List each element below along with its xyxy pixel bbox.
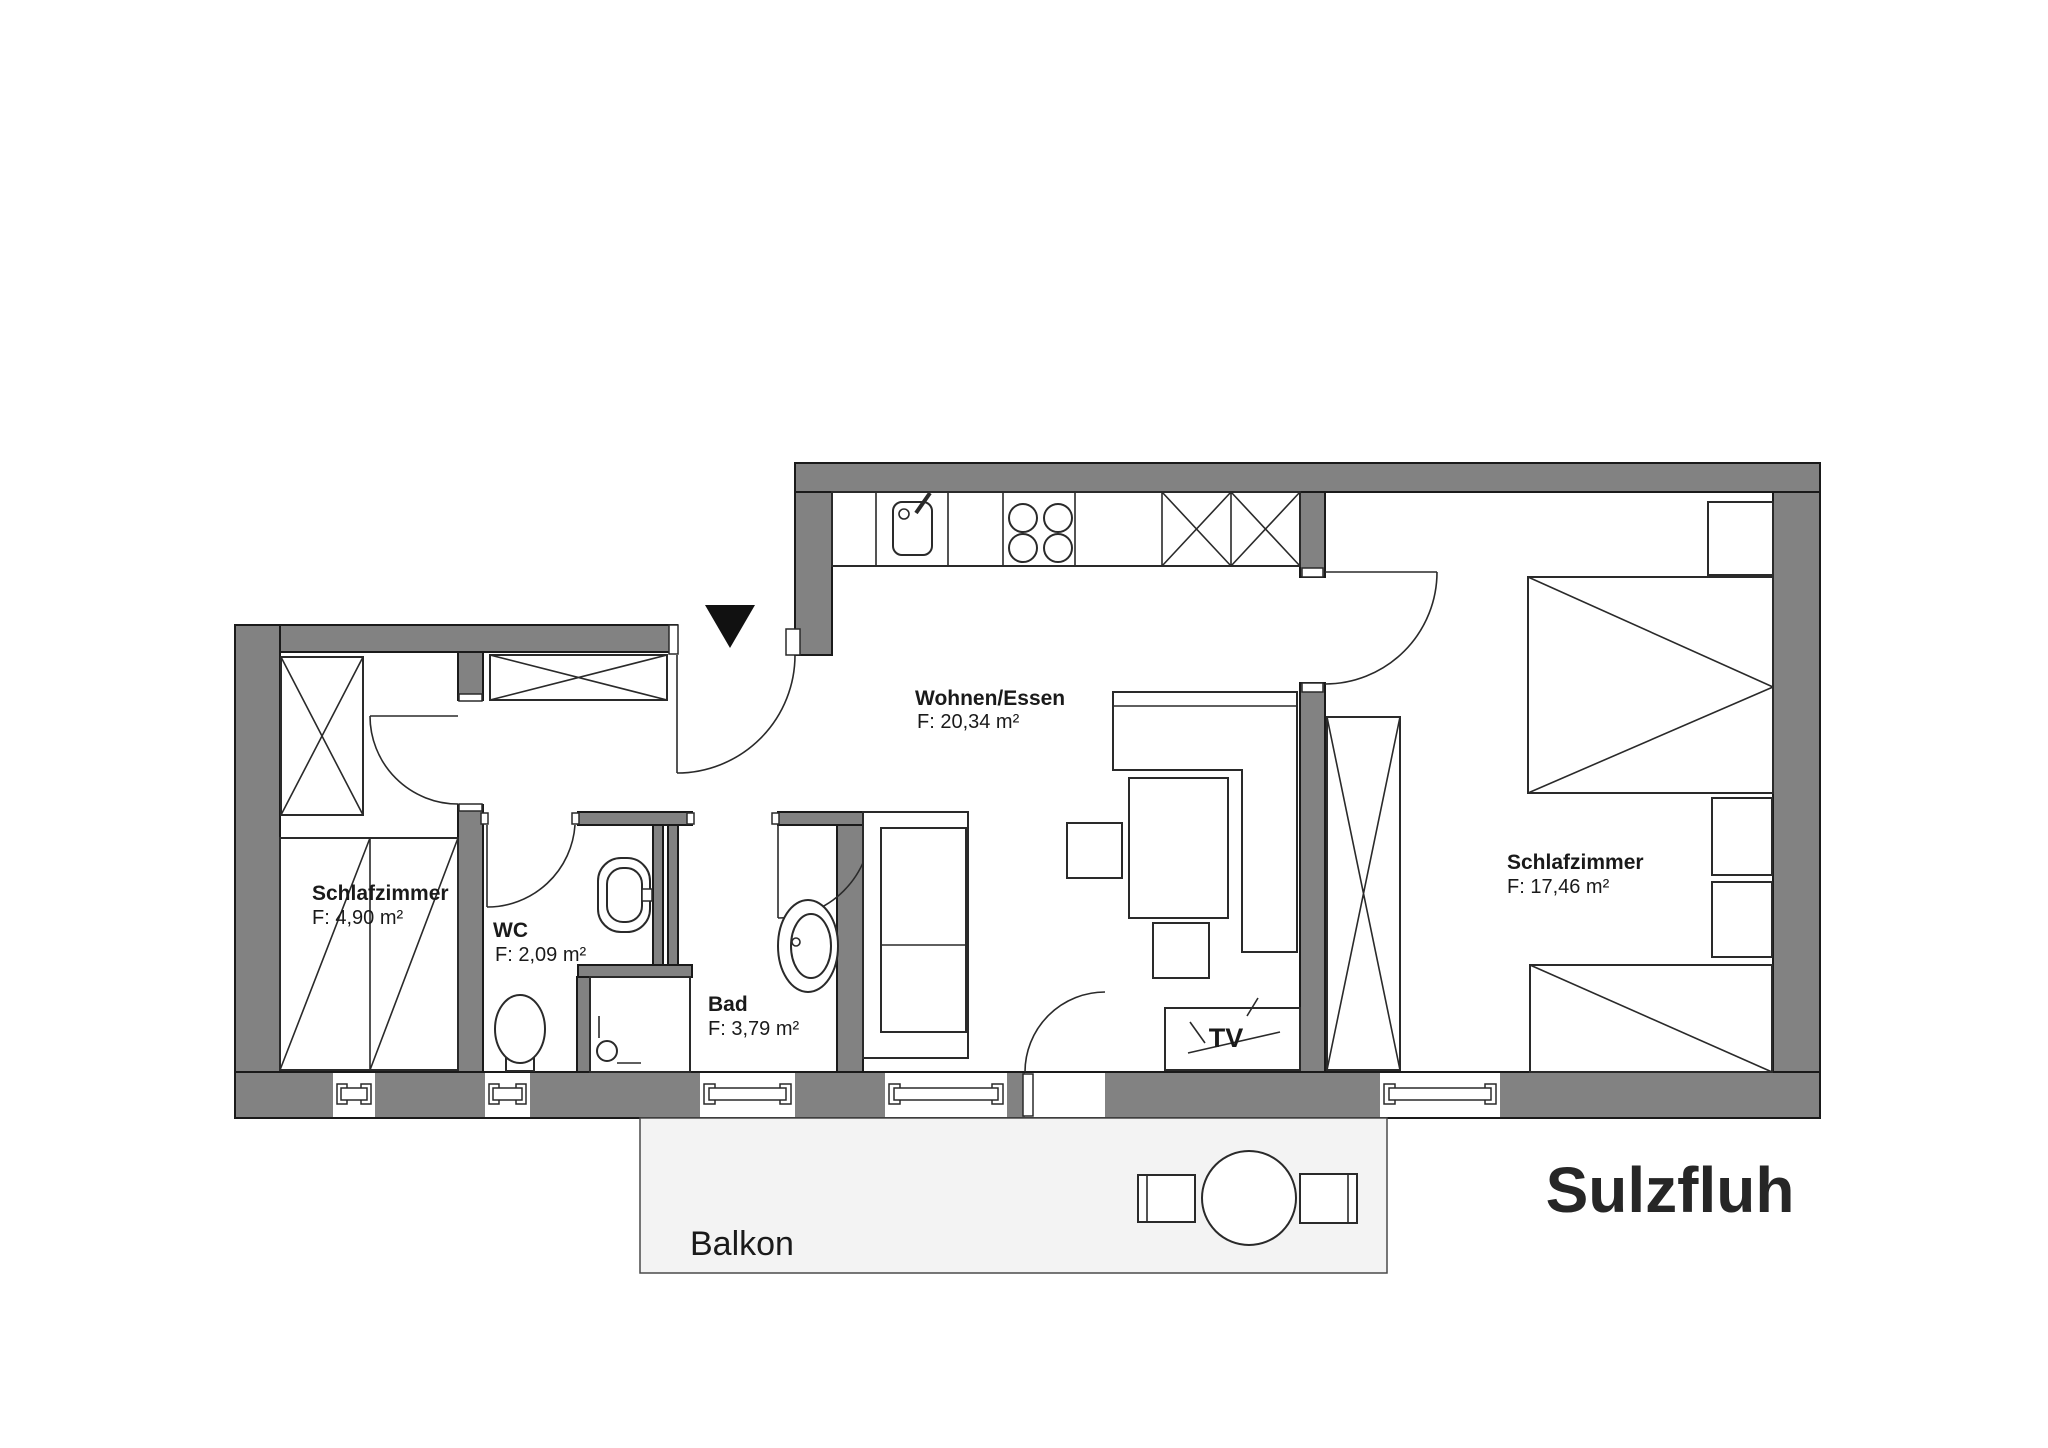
room-name-schlaf-l: Schlafzimmer xyxy=(312,882,449,905)
bunk-beds xyxy=(280,838,458,1070)
room-area-schlaf-l: F: 4,90 m² xyxy=(312,907,403,929)
dining-table xyxy=(1129,778,1228,918)
room-name-bad: Bad xyxy=(708,993,748,1016)
balcony-chair xyxy=(1138,1175,1195,1222)
plan-title: Sulzfluh xyxy=(1546,1154,1795,1226)
chair xyxy=(1067,823,1122,878)
wardrobe xyxy=(1327,717,1400,1070)
entry-door-swing xyxy=(677,655,795,773)
balcony-label: Balkon xyxy=(690,1225,794,1263)
bedroom-right-door-swing xyxy=(1325,572,1437,684)
shower xyxy=(590,977,690,1072)
desk xyxy=(1530,965,1772,1072)
bedroom-left-furniture xyxy=(280,657,458,1070)
wc-door-swing xyxy=(487,825,575,907)
hall-coat-closet xyxy=(490,655,667,700)
entry-arrow-icon xyxy=(705,605,755,648)
bedroom-left-door-swing xyxy=(370,716,458,804)
double-bed xyxy=(1528,577,1773,793)
room-area-wohnen: F: 20,34 m² xyxy=(917,711,1020,733)
floor-plan: TV Balkon xyxy=(0,0,2048,1448)
tv-sideboard: TV xyxy=(1165,998,1300,1070)
chair xyxy=(1153,923,1209,978)
nightstand xyxy=(1708,502,1773,575)
room-name-schlaf-r: Schlafzimmer xyxy=(1507,851,1644,874)
room-area-wc: F: 2,09 m² xyxy=(495,944,586,966)
balcony: Balkon xyxy=(640,1118,1387,1273)
washbasin xyxy=(598,858,652,932)
living-furniture: TV xyxy=(863,692,1300,1070)
balcony-chair xyxy=(1300,1174,1357,1223)
sofa xyxy=(863,812,968,1058)
nightstand xyxy=(1712,798,1772,875)
balcony-table xyxy=(1202,1151,1296,1245)
room-name-wohnen: Wohnen/Essen xyxy=(915,687,1065,710)
nightstand xyxy=(1712,882,1772,957)
room-area-schlaf-r: F: 17,46 m² xyxy=(1507,876,1610,898)
room-area-bad: F: 3,79 m² xyxy=(708,1018,799,1040)
kitchen-counter xyxy=(832,492,1300,566)
toilet xyxy=(495,995,545,1071)
wardrobe xyxy=(281,657,363,815)
tv-label: TV xyxy=(1209,1023,1244,1053)
washbasin xyxy=(778,900,838,992)
room-labels: Wohnen/Essen F: 20,34 m² Schlafzimmer F:… xyxy=(312,687,1644,1040)
bedroom-right-furniture xyxy=(1327,502,1773,1072)
room-name-wc: WC xyxy=(493,919,528,942)
floor-plan-page: TV Balkon xyxy=(0,0,2048,1448)
